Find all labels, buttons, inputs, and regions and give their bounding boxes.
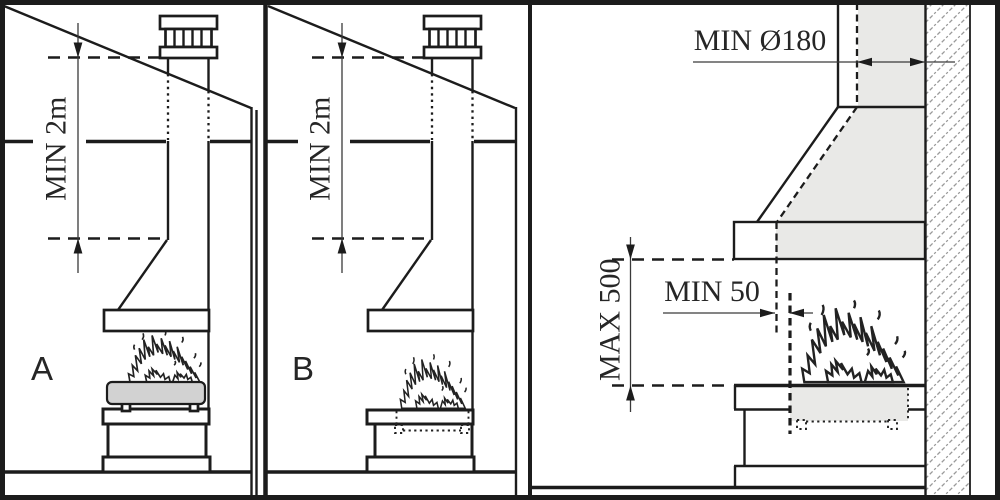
hood-slope-a — [118, 240, 167, 310]
dimension-label-min-2m-b: MIN 2m — [304, 84, 336, 214]
hood-rim-a — [104, 310, 209, 331]
diagram-linework — [0, 0, 1000, 500]
fire-flames-detail — [802, 300, 905, 382]
rim-section-fill — [776, 222, 925, 259]
chimney-b — [424, 16, 481, 140]
dimension-label-min-50: MIN 50 — [652, 276, 772, 308]
hearth-b — [367, 410, 474, 472]
hood-slope-b — [382, 240, 431, 310]
detail-panel — [530, 3, 970, 497]
chimney-cap-grille-b — [430, 29, 476, 47]
chimney-cap-base-b — [424, 47, 481, 58]
hood-section-fill — [778, 107, 925, 222]
panel-a-letter: A — [22, 352, 62, 387]
hood-rim-b — [368, 310, 473, 331]
wall-hatching — [926, 3, 970, 497]
panel-a — [3, 6, 257, 497]
fireplace-installation-diagram: A B MIN 2m MIN 2m MIN Ø180 MAX 500 MIN 5… — [0, 0, 1000, 500]
dimension-label-min-2m-a: MIN 2m — [40, 84, 72, 214]
panel-b-letter: B — [283, 352, 323, 387]
fire-basket-a — [107, 382, 205, 411]
panel-b — [267, 6, 516, 497]
chimney-cap-base-a — [160, 47, 217, 58]
chimney-a — [160, 16, 217, 140]
hood-b — [368, 141, 473, 410]
chimney-cap-grille-a — [166, 29, 212, 47]
basket-section-fill — [790, 387, 908, 421]
dimension-max-500 — [612, 237, 734, 412]
flue-section-fill — [858, 3, 925, 107]
chimney-cap-top-a — [160, 16, 217, 29]
chimney-cap-top-b — [424, 16, 481, 29]
fire-flames-b — [400, 354, 466, 408]
fire-flames-a — [129, 330, 201, 382]
dimension-label-min-diameter-180: MIN Ø180 — [685, 25, 835, 57]
hearth-a — [103, 409, 210, 472]
dimension-label-max-500: MAX 500 — [594, 255, 626, 385]
